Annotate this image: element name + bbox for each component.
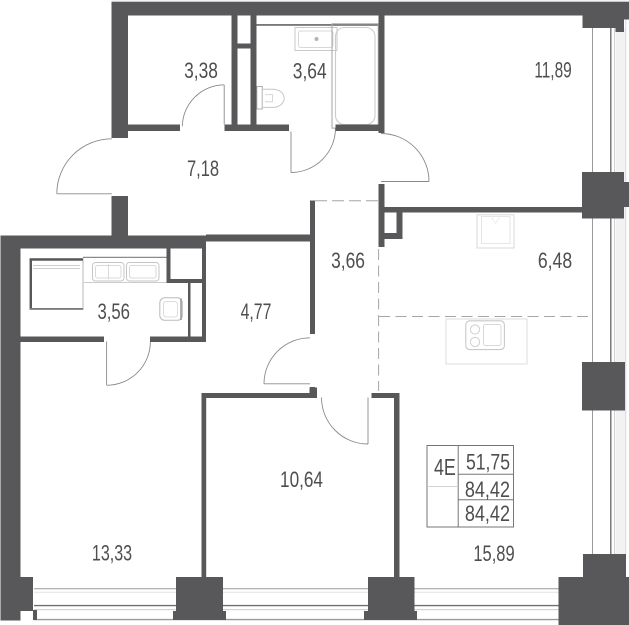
svg-text:84,42: 84,42 — [465, 478, 510, 502]
svg-text:6,48: 6,48 — [538, 249, 572, 273]
svg-text:11,89: 11,89 — [534, 59, 571, 83]
svg-text:10,64: 10,64 — [280, 468, 323, 493]
svg-text:15,89: 15,89 — [473, 542, 514, 567]
svg-text:3,66: 3,66 — [331, 249, 365, 273]
svg-text:7,18: 7,18 — [187, 157, 219, 182]
svg-text:51,75: 51,75 — [466, 451, 510, 475]
svg-text:3,56: 3,56 — [97, 300, 130, 325]
svg-text:3,38: 3,38 — [184, 59, 218, 83]
svg-text:13,33: 13,33 — [92, 542, 132, 566]
svg-text:4,77: 4,77 — [241, 300, 272, 324]
svg-text:84,42: 84,42 — [465, 502, 510, 526]
svg-text:4Е: 4Е — [434, 455, 456, 481]
svg-text:3,64: 3,64 — [293, 59, 327, 83]
